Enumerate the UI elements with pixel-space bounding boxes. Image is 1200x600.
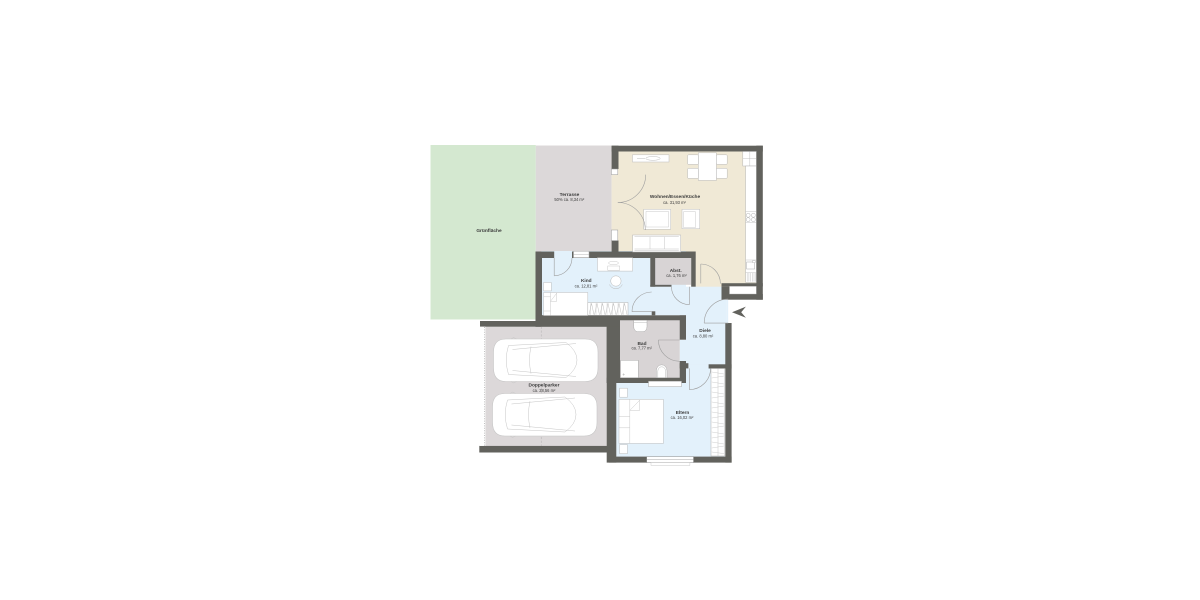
svg-text:ca. 1,76 m²: ca. 1,76 m²: [666, 273, 687, 278]
svg-text:ca. 16,02 m²: ca. 16,02 m²: [671, 415, 694, 420]
svg-text:ca. 31,93 m²: ca. 31,93 m²: [663, 200, 686, 205]
svg-text:Grünfläche: Grünfläche: [476, 228, 502, 234]
svg-text:ca. 7,77 m²: ca. 7,77 m²: [631, 345, 652, 350]
svg-text:50% ca. 8,34 m²: 50% ca. 8,34 m²: [554, 197, 584, 202]
svg-text:ca. 12,81 m²: ca. 12,81 m²: [575, 284, 598, 289]
svg-text:ca. 8,80 m²: ca. 8,80 m²: [693, 334, 714, 339]
svg-text:ca. 28,56 m²: ca. 28,56 m²: [533, 388, 556, 393]
